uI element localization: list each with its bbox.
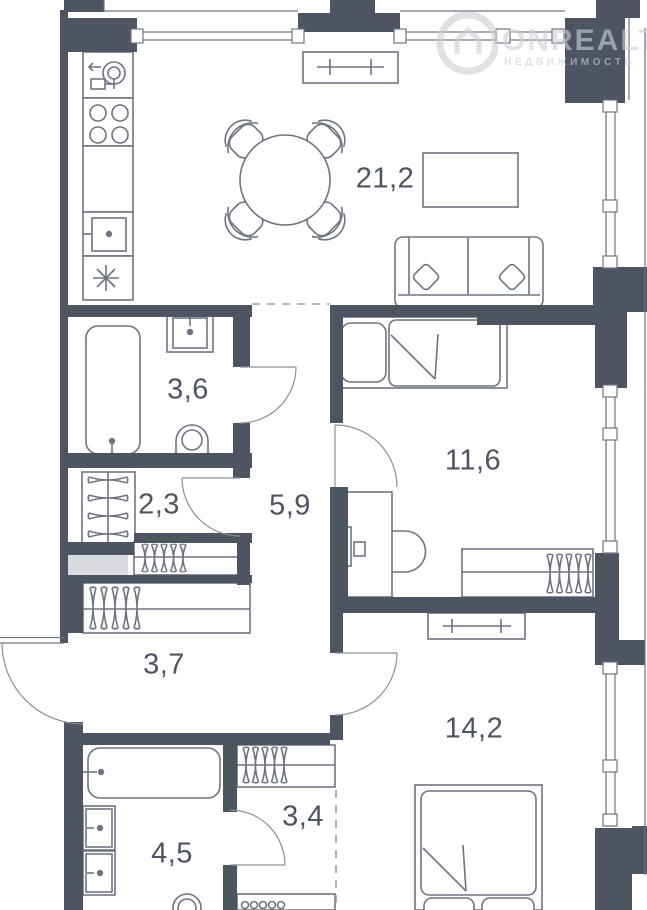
floor-plan-drawing: [0, 0, 647, 910]
room-label-kitchen-living: 21,2: [356, 163, 414, 196]
door-wardrobe: [182, 478, 240, 536]
window: [603, 662, 617, 826]
sofa-icon: [395, 237, 543, 308]
room-label-bedroom: 11,6: [445, 445, 501, 478]
furniture-layer: [63, 52, 593, 910]
room-label-bathroom: 3,6: [167, 374, 209, 407]
window: [603, 100, 617, 268]
desk-chair-icon: [392, 531, 425, 572]
room-label-bathroom-2: 4,5: [151, 838, 193, 871]
door-closet: [230, 810, 285, 865]
window: [603, 385, 617, 553]
entrance-threshold: [0, 638, 64, 644]
toilet-2-icon: [173, 894, 201, 910]
door-entrance: [2, 643, 83, 724]
room-label-corridor: 3,7: [143, 649, 185, 682]
wardrobe-icon: [462, 549, 593, 597]
window: [394, 29, 564, 43]
room-label-wardrobe: 2,3: [138, 489, 180, 522]
washbasin-2-icon: [83, 806, 115, 895]
radiator-2-icon: [428, 613, 525, 639]
floor-plan: 21,2 3,6 11,6 2,3 5,9 3,7 14,2 3,4 4,5 O…: [0, 0, 647, 910]
bed-icon: [334, 317, 507, 388]
door-bedroom: [335, 425, 397, 487]
radiator-icon: [303, 52, 398, 83]
shaft: [63, 555, 128, 575]
hall-wardrobe-icon: [83, 583, 250, 633]
bed-2-icon: [415, 785, 542, 910]
washbasin-icon: [167, 314, 213, 352]
room-label-hallway: 5,9: [269, 490, 311, 523]
room-label-bedroom-2: 14,2: [445, 713, 503, 746]
tv-stand-icon: [423, 153, 518, 207]
door-bathroom: [240, 367, 296, 423]
bathtub-2-icon: [83, 748, 220, 798]
window: [131, 29, 304, 43]
bathtub-icon: [86, 326, 140, 454]
door-bedroom-2: [335, 653, 397, 715]
dining-table-icon: [240, 135, 330, 225]
room-label-closet: 3,4: [282, 801, 324, 834]
